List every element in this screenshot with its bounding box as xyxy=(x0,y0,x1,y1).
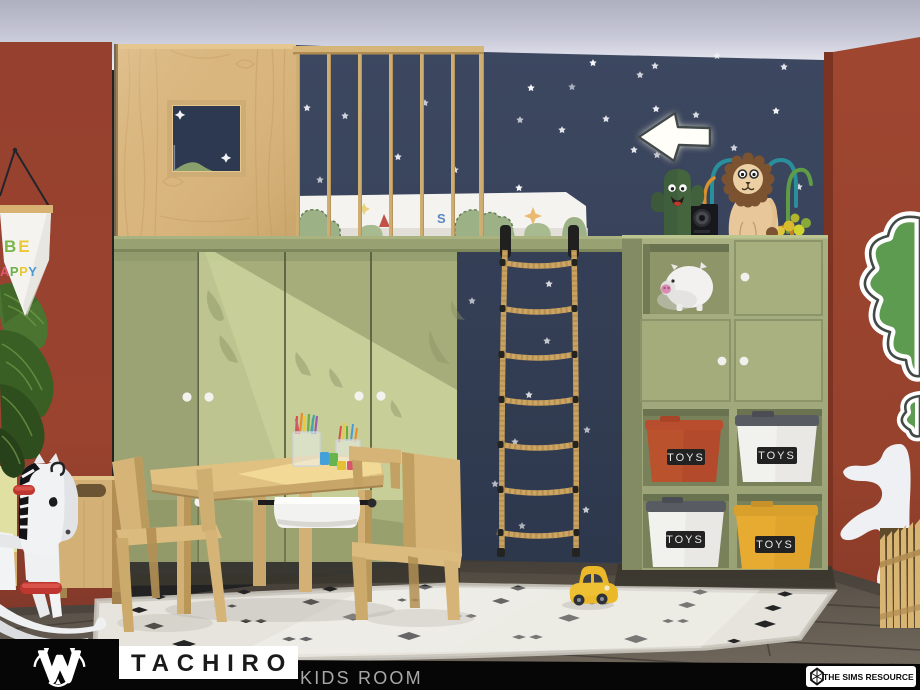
svg-text:KIDS ROOM: KIDS ROOM xyxy=(300,668,423,688)
svg-text:APPY: APPY xyxy=(0,264,37,279)
svg-text:S: S xyxy=(437,211,446,226)
svg-text:BE: BE xyxy=(4,237,32,256)
svg-text:TOYS: TOYS xyxy=(758,450,796,462)
svg-text:THE SIMS RESOURCE: THE SIMS RESOURCE xyxy=(823,672,914,682)
svg-text:TACHIRO: TACHIRO xyxy=(131,650,293,677)
svg-text:TOYS: TOYS xyxy=(667,452,705,464)
svg-text:TOYS: TOYS xyxy=(756,539,794,551)
svg-text:TOYS: TOYS xyxy=(666,534,704,546)
